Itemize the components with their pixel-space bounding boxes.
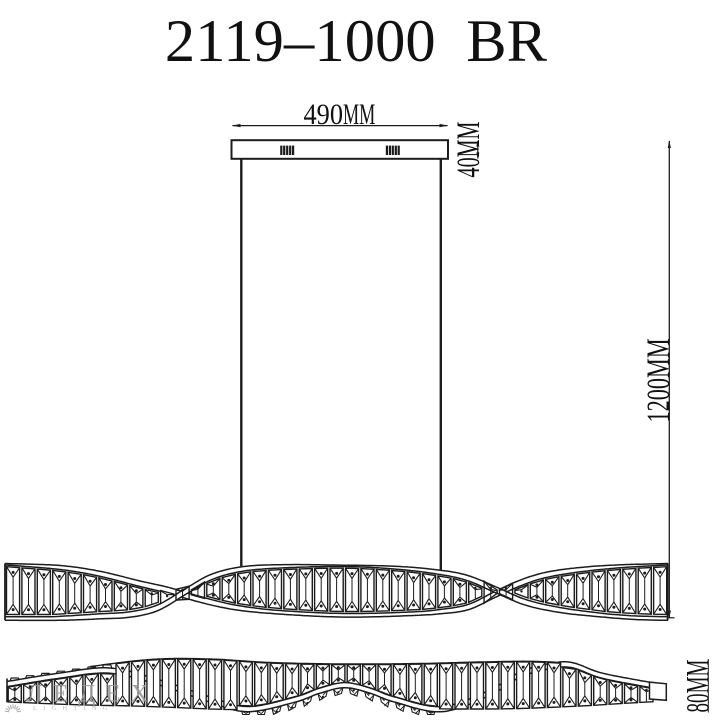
svg-text:40MM: 40MM [450, 122, 486, 178]
svg-text:80MM: 80MM [679, 660, 716, 713]
svg-text:ЛЕДЕХ: ЛЕДЕХ [26, 681, 159, 708]
svg-text:LIGHTING: LIGHTING [33, 705, 114, 712]
svg-text:2119–1000 BR: 2119–1000 BR [165, 8, 548, 75]
svg-text:1200MM: 1200MM [641, 338, 677, 422]
svg-text:490: 490 [304, 99, 344, 132]
svg-text:MM: MM [343, 99, 375, 131]
